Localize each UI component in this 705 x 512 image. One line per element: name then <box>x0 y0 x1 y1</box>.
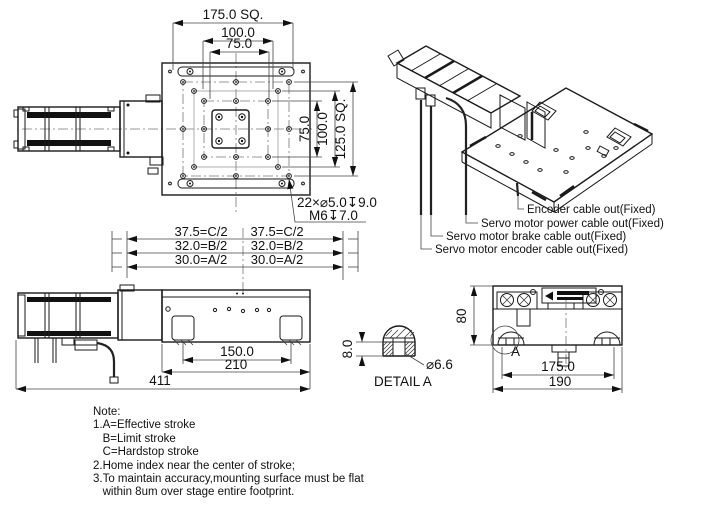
stroke-b2-left: 32.0=B/2 <box>175 238 227 253</box>
dim-210: 210 <box>225 357 248 372</box>
servo-motor-side <box>18 285 162 383</box>
label-motor-encoder-cable: Servo motor encoder cable out(Fixed) <box>435 244 628 256</box>
stroke-c2-left: 37.5=C/2 <box>174 224 227 239</box>
note-line-2: B=Limit stroke <box>93 433 438 446</box>
servo-motor-plan <box>14 95 163 174</box>
label-brake-cable: Servo motor brake cable out(Fixed) <box>446 231 626 243</box>
note-line-3: C=Hardstop stroke <box>93 446 438 459</box>
dim-411: 411 <box>149 373 171 388</box>
dim-8: 8.0 <box>340 340 355 359</box>
label-encoder-cable: Encoder cable out(Fixed) <box>527 204 656 216</box>
detail-a-marker: A <box>511 344 520 359</box>
dim-v75: 75.0 <box>297 116 312 142</box>
dim-190: 190 <box>549 374 572 389</box>
dim-175-sq: 175.0 SQ. <box>203 7 264 22</box>
dim-75: 75.0 <box>226 36 252 51</box>
note-line-1: 1.A=Effective stroke <box>93 419 438 432</box>
stroke-a2-left: 30.0=A/2 <box>175 252 227 267</box>
stroke-a2-right: 30.0=A/2 <box>251 252 303 267</box>
top-view: 175.0 SQ. 100.0 75.0 75.0 100.0 125.0 SQ… <box>14 7 377 223</box>
stroke-c2-right: 37.5=C/2 <box>250 224 303 239</box>
notes-block: Note: 1.A=Effective stroke B=Limit strok… <box>93 406 438 500</box>
note-line-4: 2.Home index near the center of stroke; <box>93 460 438 473</box>
iso-view: Encoder cable out(Fixed) Servo motor pow… <box>388 46 664 256</box>
notes-title: Note: <box>93 406 438 419</box>
dim-175: 175.0 <box>541 359 575 374</box>
front-view: A 80 175.0 190 <box>454 286 622 393</box>
dim-v125-sq: 125.0 SQ. <box>333 99 348 160</box>
note-line-5: 3.To maintain accuracy,mounting surface … <box>93 473 438 486</box>
detail-a-title: DETAIL A <box>374 374 432 389</box>
detail-a-view: 8.0 ⌀6.6 DETAIL A <box>340 326 453 389</box>
label-power-cable: Servo motor power cable out(Fixed) <box>481 218 664 230</box>
stroke-b2-right: 32.0=B/2 <box>251 238 303 253</box>
drawing-canvas: 175.0 SQ. 100.0 75.0 75.0 100.0 125.0 SQ… <box>0 0 705 512</box>
dim-v100: 100.0 <box>315 112 330 146</box>
dim-dia-6-6: ⌀6.6 <box>426 357 453 372</box>
hole-callout-line2: M6↧7.0 <box>309 208 358 223</box>
brand-label <box>531 288 604 309</box>
brand-logo-triangle <box>545 292 553 301</box>
note-line-6: within 8um over stage entire footprint. <box>93 486 438 499</box>
side-view: 37.5=C/2 37.5=C/2 32.0=B/2 32.0=B/2 30.0… <box>16 224 358 389</box>
dim-80: 80 <box>454 308 469 323</box>
